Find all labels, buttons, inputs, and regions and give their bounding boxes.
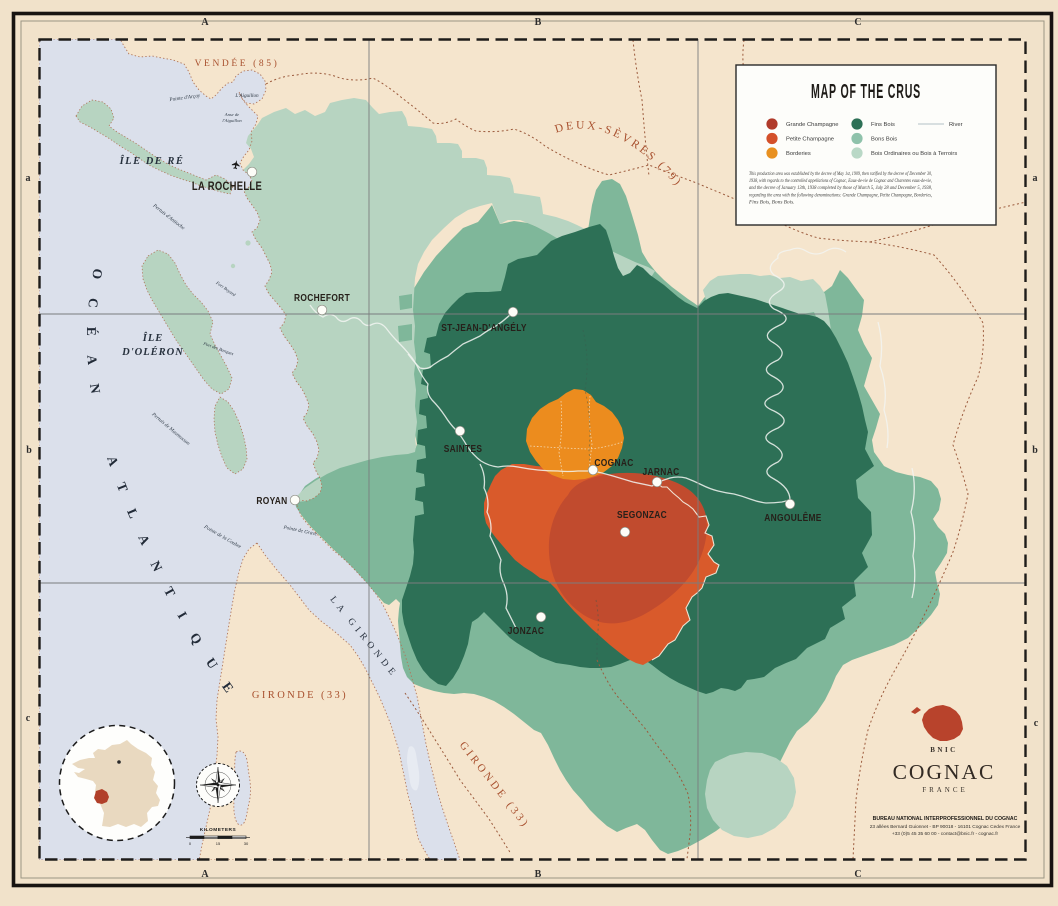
svg-text:+33 (0)5 45 35 60 00 - contact: +33 (0)5 45 35 60 00 - contact@bnic.fr -… <box>892 831 999 837</box>
svg-text:GIRONDE (33): GIRONDE (33) <box>252 690 348 701</box>
svg-text:JONZAC: JONZAC <box>508 625 544 637</box>
svg-text:SEGONZAC: SEGONZAC <box>617 509 667 521</box>
svg-text:l'Aiguillon: l'Aiguillon <box>222 118 242 123</box>
svg-text:BUREAU NATIONAL INTERPROFESSIO: BUREAU NATIONAL INTERPROFESSIONNEL DU CO… <box>873 816 1018 822</box>
svg-text:L'Aiguillon: L'Aiguillon <box>234 93 259 99</box>
svg-text:JARNAC: JARNAC <box>643 466 680 478</box>
svg-text:and the decree of January 13th: and the decree of January 13th, 1938 com… <box>749 184 932 191</box>
svg-text:Borderies: Borderies <box>786 151 811 157</box>
svg-text:B: B <box>535 17 542 28</box>
svg-text:Bois Ordinaires ou Bois à Terr: Bois Ordinaires ou Bois à Terroirs <box>871 151 957 157</box>
svg-text:KILOMETERS: KILOMETERS <box>200 827 237 833</box>
svg-text:COGNAC: COGNAC <box>594 457 633 469</box>
svg-text:River: River <box>949 122 963 128</box>
svg-text:a: a <box>26 173 31 184</box>
svg-text:COGNAC: COGNAC <box>893 760 996 784</box>
svg-text:D'OLÉRON: D'OLÉRON <box>121 346 184 358</box>
svg-text:Fins Bois, Bons Bois.: Fins Bois, Bons Bois. <box>748 199 794 205</box>
svg-text:Fins Bois: Fins Bois <box>871 122 895 128</box>
svg-text:This production area was estab: This production area was established by … <box>749 170 932 177</box>
svg-text:b: b <box>26 445 32 456</box>
svg-text:LA ROCHELLE: LA ROCHELLE <box>192 180 262 193</box>
svg-text:ROCHEFORT: ROCHEFORT <box>294 292 350 304</box>
svg-text:C: C <box>854 869 861 880</box>
svg-text:FRANCE: FRANCE <box>922 786 968 794</box>
svg-text:VENDÉE (85): VENDÉE (85) <box>195 57 280 69</box>
svg-text:ANGOULÊME: ANGOULÊME <box>764 511 821 524</box>
svg-text:23 allées Bernard Guionnet - B: 23 allées Bernard Guionnet - BP 90018 - … <box>870 824 1021 830</box>
svg-text:15: 15 <box>216 841 221 846</box>
svg-text:ÎLE DE RÉ: ÎLE DE RÉ <box>119 155 185 167</box>
svg-text:B: B <box>535 869 542 880</box>
svg-text:A: A <box>201 17 209 28</box>
svg-text:b: b <box>1032 445 1038 456</box>
svg-text:1938, with regards to the cont: 1938, with regards to the controlled app… <box>749 177 932 184</box>
svg-text:ÎLE: ÎLE <box>142 332 164 344</box>
svg-text:Grande Champagne: Grande Champagne <box>786 122 839 128</box>
svg-text:Bons Bois: Bons Bois <box>871 137 897 143</box>
svg-text:regarding the area with the fo: regarding the area with the following de… <box>749 191 932 198</box>
svg-text:Anse de: Anse de <box>224 112 239 117</box>
svg-text:ST-JEAN-D'ANGÉLY: ST-JEAN-D'ANGÉLY <box>441 322 527 334</box>
svg-text:30: 30 <box>244 841 249 846</box>
svg-text:Petite Champagne: Petite Champagne <box>786 137 834 143</box>
svg-text:BNIC: BNIC <box>930 746 958 754</box>
svg-text:MAP OF THE CRUS: MAP OF THE CRUS <box>811 82 921 103</box>
svg-text:ROYAN: ROYAN <box>256 495 287 507</box>
svg-text:c: c <box>26 713 31 724</box>
svg-text:A: A <box>201 869 209 880</box>
svg-text:c: c <box>1034 718 1039 729</box>
svg-text:C: C <box>854 17 861 28</box>
svg-text:SAINTES: SAINTES <box>444 443 483 455</box>
svg-text:a: a <box>1033 173 1038 184</box>
